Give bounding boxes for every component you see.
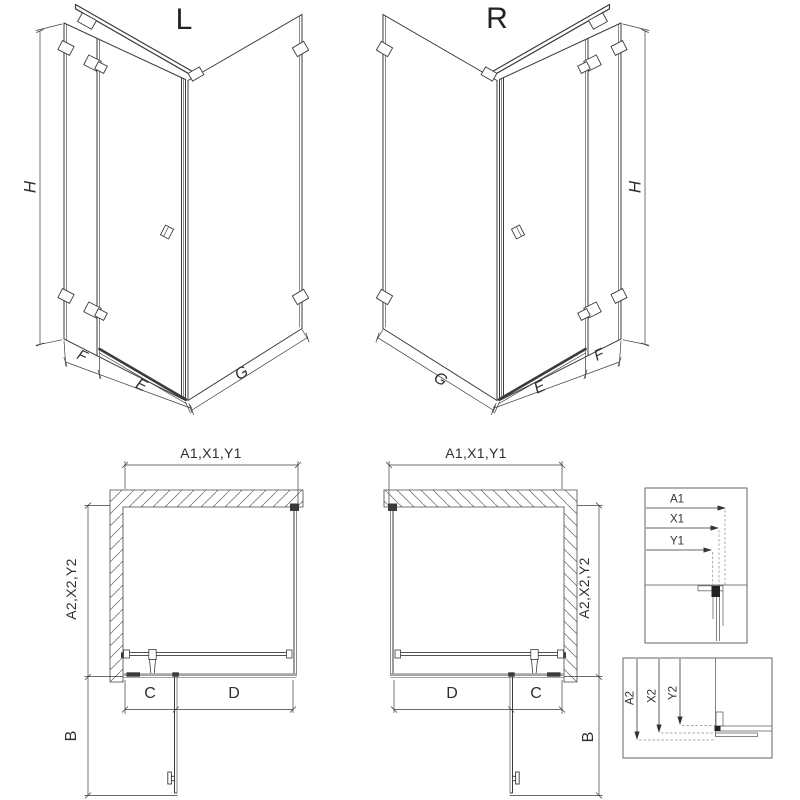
door-open-dim-label-left: B xyxy=(64,731,80,742)
detail-box-depth xyxy=(623,658,772,758)
plan-width-dim-label-left: A1,X1,Y1 xyxy=(180,446,242,460)
plan-view-right xyxy=(384,461,603,799)
detail-x1-label: X1 xyxy=(670,514,684,526)
detail-a1-label: A1 xyxy=(670,494,684,506)
variant-label-right: R xyxy=(486,4,508,34)
plan-width-dim-label-right: A1,X1,Y1 xyxy=(445,446,507,460)
variant-label-left: L xyxy=(176,5,193,35)
door-segment-dim-label-right: D xyxy=(446,686,458,702)
detail-y2-label: Y2 xyxy=(668,686,680,700)
door-segment-dim-label-left: D xyxy=(228,686,240,702)
detail-y1-label: Y1 xyxy=(670,536,684,548)
plan-view-left xyxy=(85,461,304,799)
technical-drawing-canvas: L R H F E G H G E F A1,X1,Y1 A2,X2,Y2 C … xyxy=(0,0,800,800)
door-open-dim-label-right: B xyxy=(581,732,597,743)
detail-x2-label: X2 xyxy=(647,689,659,703)
detail-box-width xyxy=(645,488,747,643)
plan-depth-dim-label-left: A2,X2,Y2 xyxy=(64,558,78,620)
plan-depth-dim-label-right: A2,X2,Y2 xyxy=(577,557,591,619)
iso-view-right xyxy=(376,5,649,415)
fixed-segment-dim-label-right: C xyxy=(530,686,542,702)
fixed-segment-dim-label-left: C xyxy=(144,686,156,702)
detail-a2-label: A2 xyxy=(625,691,637,705)
height-dim-label-right: H xyxy=(627,181,644,193)
line-art xyxy=(0,0,800,800)
height-dim-label-left: H xyxy=(22,181,39,193)
